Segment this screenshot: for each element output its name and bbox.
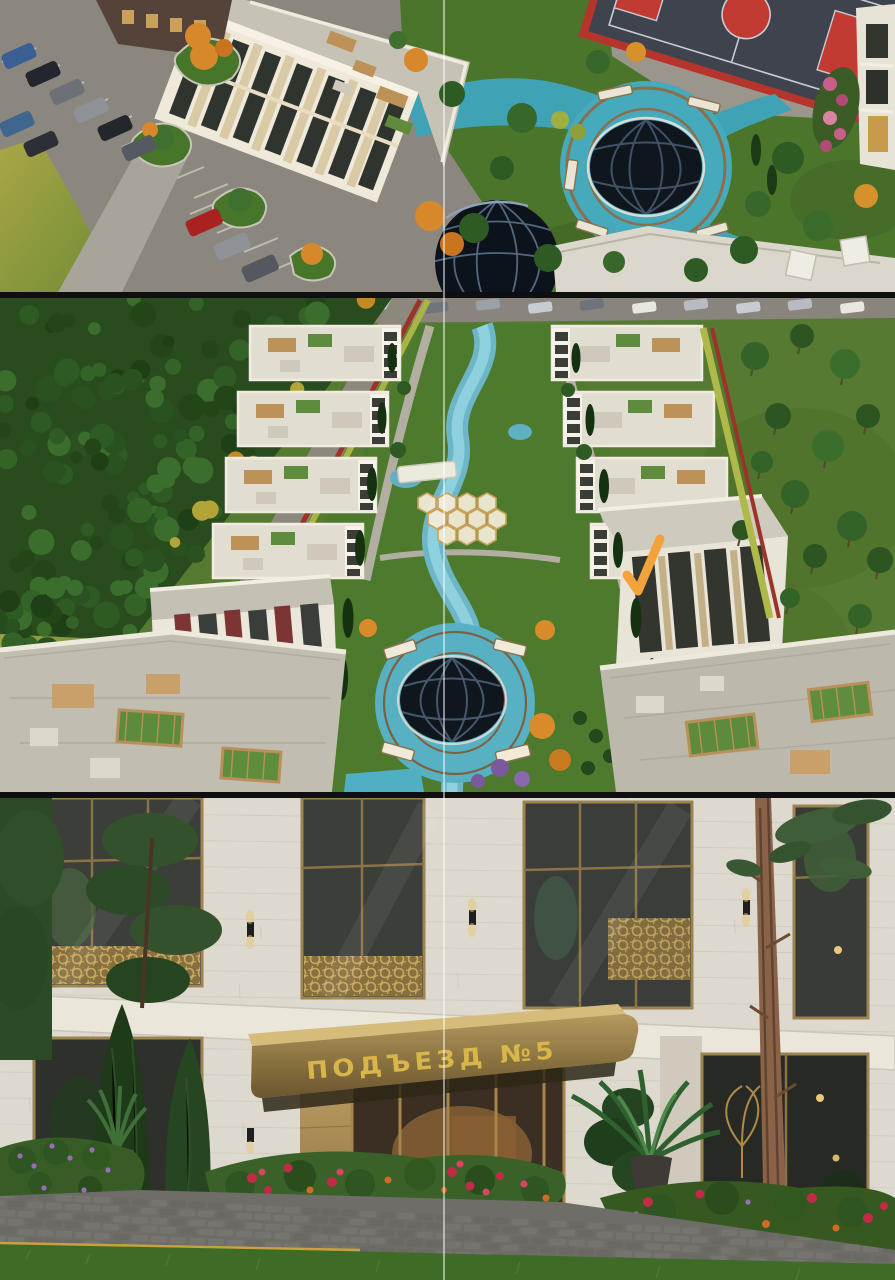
photo-collage: ПОДЪЕЗД №5: [0, 0, 895, 1280]
panel-entrance-facade: ПОДЪЕЗД №5: [0, 798, 895, 1280]
fountain-dome: [590, 120, 702, 214]
patio-umbrella: [786, 250, 817, 281]
patio-umbrella: [840, 236, 870, 266]
foreground-rooftop-left: [0, 632, 346, 792]
panel-aerial-fountain-plaza: [0, 0, 895, 292]
courtyard-fountain-plaza: [375, 623, 535, 783]
fountain-dome: [400, 658, 504, 742]
building-right-edge: [856, 4, 895, 170]
panel-aerial-residential-rows: [0, 298, 895, 792]
center-guide-line: [443, 0, 445, 1280]
